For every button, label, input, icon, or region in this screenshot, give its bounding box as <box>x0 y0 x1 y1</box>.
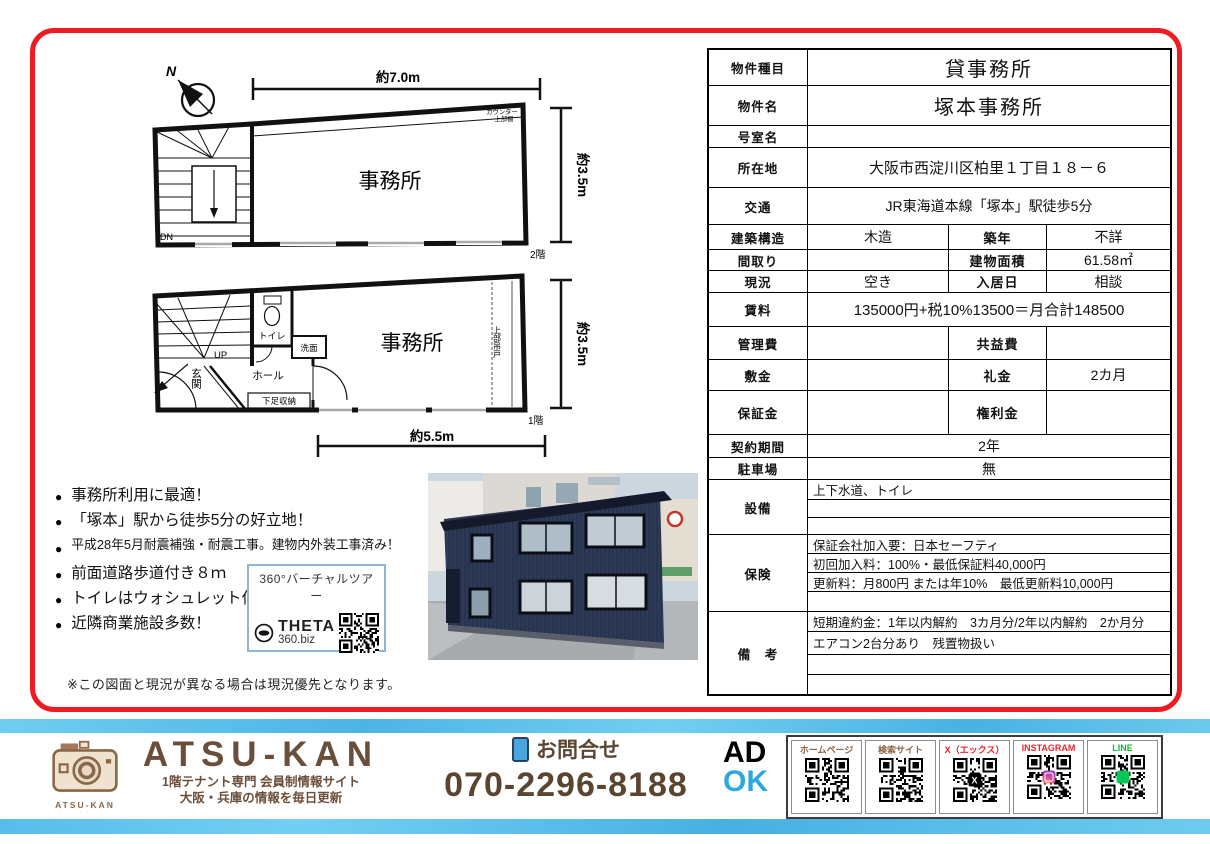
disclaimer-note: ※この図面と現況が異なる場合は現況優先となります。 <box>67 674 401 693</box>
spec-line <box>808 655 1170 675</box>
stairs-dn-label: DN <box>160 232 173 242</box>
x-logo-icon: X <box>968 774 981 787</box>
contact-block: お問合せ 070-2296-8188 <box>438 735 694 807</box>
qr-code-label: LINE <box>1112 743 1133 753</box>
highlight-text: 平成28年5月耐震補強・耐震工事。建物内外装工事済み！ <box>71 533 399 561</box>
highlight-text: 前面道路歩道付き８ｍ <box>71 561 226 586</box>
shoe-storage-label: 下足収納 <box>262 396 296 406</box>
spec-line: 短期違約金：1年以内解約 3カ月分/2年以内解約 2か月分 <box>808 612 1170 632</box>
ok-label: OK <box>723 768 768 797</box>
line-logo-icon <box>1116 771 1129 784</box>
spec-label: 物件名 <box>709 86 808 125</box>
spec-value <box>808 126 1170 147</box>
table-row: 駐車場無 <box>709 458 1170 480</box>
highlight-text: 「塚本」駅から徒歩5分の好立地！ <box>71 508 312 533</box>
theta-brand-label: THETA <box>278 619 335 635</box>
qr-code-label: 検索サイト <box>878 743 923 756</box>
spec-label: 建物面積 <box>948 250 1047 270</box>
highlight-text: 事務所利用に最適！ <box>71 483 211 508</box>
table-row: 建築構造木造築年不詳 <box>709 225 1170 250</box>
qr-code-item: INSTAGRAM <box>1013 740 1084 814</box>
camera-icon <box>50 740 120 794</box>
spec-label: 権利金 <box>948 391 1047 434</box>
building-photo <box>428 473 698 660</box>
spec-value <box>1047 327 1170 359</box>
table-row: 保険保証会社加入要：日本セーフティ初回加入料：100%・最低保証料40,000円… <box>709 535 1170 612</box>
counter-label-1: カウンター <box>486 107 517 116</box>
spec-table: 物件種目貸事務所物件名塚本事務所号室名所在地大阪市西淀川区柏里１丁目１８－６交通… <box>707 48 1172 696</box>
spec-label: 所在地 <box>709 148 808 187</box>
brand-subtitle-1: 1階テナント専門 会員制情報サイト <box>136 774 386 790</box>
spec-multiline: 上下水道、トイレ <box>808 480 1170 534</box>
spec-value: 貸事務所 <box>808 50 1170 85</box>
room-label-1f: 事務所 <box>381 332 444 355</box>
spec-line: 更新料：月800円 または年10% 最低更新料10,000円 <box>808 573 1170 592</box>
spec-value: 木造 <box>808 225 948 249</box>
spec-label: 設備 <box>709 480 808 534</box>
floor-label-2f: 2階 <box>530 249 546 261</box>
spec-label: 契約期間 <box>709 435 808 457</box>
spec-label: 駐車場 <box>709 458 808 479</box>
table-row: 所在地大阪市西淀川区柏里１丁目１８－６ <box>709 148 1170 188</box>
spec-line: 上下水道、トイレ <box>808 480 1170 500</box>
spec-label: 交通 <box>709 188 808 224</box>
room-label-2f: 事務所 <box>359 170 422 193</box>
qr-code-label: ホームページ <box>800 743 854 756</box>
logo-tagline-dots: · · · · · · · · <box>46 810 124 815</box>
spec-value: JR東海道本線「塚本」駅徒歩5分 <box>808 188 1170 224</box>
table-row: 賃料135000円+税10%13500＝月合計148500 <box>709 293 1170 327</box>
footer-wave-bottom <box>0 819 1210 834</box>
phone-icon <box>512 737 529 762</box>
table-row: 管理費共益費 <box>709 327 1170 360</box>
dim-top-2f: 約7.0m <box>376 69 420 85</box>
spec-line <box>808 675 1170 694</box>
table-row: 交通JR東海道本線「塚本」駅徒歩5分 <box>709 188 1170 225</box>
spec-line <box>808 518 1170 534</box>
brand-title: ATSU-KAN <box>136 737 386 774</box>
hall-label: ホール <box>252 370 284 382</box>
spec-multiline: 保証会社加入要：日本セーフティ初回加入料：100%・最低保証料40,000円更新… <box>808 535 1170 611</box>
spec-label: 保険 <box>709 535 808 611</box>
atsukan-logo: ATSU-KAN · · · · · · · · <box>46 740 124 815</box>
highlight-item: ●「塚本」駅から徒歩5分の好立地！ <box>55 508 455 533</box>
bullet-icon: ● <box>55 566 62 586</box>
spec-value: 不詳 <box>1047 225 1170 249</box>
spec-label: 礼金 <box>948 360 1047 390</box>
vr-tour-qr-code <box>339 607 379 659</box>
spec-value <box>1047 391 1170 434</box>
spec-value: 61.58㎡ <box>1047 250 1170 270</box>
vr-tour-box: 360°バーチャルツアー THETA 360.biz <box>247 564 386 652</box>
spec-label: 備 考 <box>709 612 808 694</box>
floor-label-1f: 1階 <box>528 415 544 427</box>
table-row: 物件種目貸事務所 <box>709 50 1170 86</box>
table-row: 号室名 <box>709 126 1170 148</box>
qr-code-label: X（エックス） <box>945 743 1005 756</box>
bullet-icon: ● <box>55 513 62 533</box>
table-row: 敷金礼金2カ月 <box>709 360 1170 391</box>
qr-code <box>1101 755 1145 799</box>
bullet-icon: ● <box>55 488 62 508</box>
spec-label: 敷金 <box>709 360 808 390</box>
spec-value: 空き <box>808 271 948 292</box>
highlight-item: ●平成28年5月耐震補強・耐震工事。建物内外装工事済み！ <box>55 533 455 561</box>
table-row: 間取り建物面積61.58㎡ <box>709 250 1170 271</box>
spec-line <box>808 592 1170 611</box>
highlight-item: ●事務所利用に最適！ <box>55 483 455 508</box>
qr-code-label: INSTAGRAM <box>1022 743 1076 753</box>
spec-line: 初回加入料：100%・最低保証料40,000円 <box>808 554 1170 573</box>
spec-value <box>808 327 948 359</box>
qr-code-item: ホームページ <box>791 740 862 814</box>
contact-label: お問合せ <box>536 734 620 764</box>
table-row: 契約期間2年 <box>709 435 1170 458</box>
spec-value: 無 <box>808 458 1170 479</box>
brand-subtitle-2: 大阪・兵庫の情報を毎日更新 <box>136 790 386 806</box>
table-row: 保証金権利金 <box>709 391 1170 435</box>
toilet-label: トイレ <box>258 331 285 341</box>
spec-line: 保証会社加入要：日本セーフティ <box>808 535 1170 554</box>
qr-code <box>805 758 849 802</box>
bullet-icon: ● <box>55 616 62 636</box>
bullet-icon: ● <box>55 538 62 561</box>
entrance-label: 玄関 <box>190 367 202 390</box>
spec-label: 号室名 <box>709 126 808 147</box>
spec-value: 135000円+税10%13500＝月合計148500 <box>808 293 1170 326</box>
ad-ok-block: AD OK <box>723 739 768 796</box>
table-row: 現況空き入居日相談 <box>709 271 1170 293</box>
table-row: 備 考短期違約金：1年以内解約 3カ月分/2年以内解約 2か月分エアコン2台分あ… <box>709 612 1170 694</box>
spec-value <box>808 360 948 390</box>
highlight-text: トイレはウォシュレット付き <box>71 586 272 611</box>
theta-sub-label: 360.biz <box>278 635 335 647</box>
dim-right-1f: 約3.5m <box>575 322 591 366</box>
spec-label: 共益費 <box>948 327 1047 359</box>
spec-label: 保証金 <box>709 391 808 434</box>
vr-tour-title: 360°バーチャルツアー <box>254 570 379 604</box>
spec-value: 相談 <box>1047 271 1170 292</box>
spec-label: 賃料 <box>709 293 808 326</box>
spec-label: 入居日 <box>948 271 1047 292</box>
qr-code: X <box>953 758 997 802</box>
highlight-text: 近隣商業施設多数！ <box>71 611 211 636</box>
spec-value: 塚本事務所 <box>808 86 1170 125</box>
spec-multiline: 短期違約金：1年以内解約 3カ月分/2年以内解約 2か月分エアコン2台分あり 残… <box>808 612 1170 694</box>
spec-label: 管理費 <box>709 327 808 359</box>
dim-bottom-1f: 約5.5m <box>410 428 454 444</box>
table-row: 物件名塚本事務所 <box>709 86 1170 126</box>
footer-wave-top <box>0 719 1210 733</box>
property-sheet: N 約7.0m 約3.5m カウンター 上部棚 DN <box>30 28 1182 712</box>
spec-value: 大阪市西淀川区柏里１丁目１８－６ <box>808 148 1170 187</box>
qr-code-item: LINE <box>1087 740 1158 814</box>
footer-band: ATSU-KAN · · · · · · · · ATSU-KAN 1階テナント… <box>0 733 1210 819</box>
hanging-door-label: 上部吊戸 <box>493 326 502 359</box>
compass-icon: N <box>166 63 214 116</box>
instagram-logo-icon <box>1042 771 1055 784</box>
qr-code-item: 検索サイト <box>865 740 936 814</box>
spec-value: 2年 <box>808 435 1170 457</box>
qr-code-item: X（エックス）X <box>939 740 1010 814</box>
qr-code <box>879 758 923 802</box>
stairs-up-label: UP <box>214 350 227 361</box>
spec-label: 築年 <box>948 225 1047 249</box>
counter-label-2: 上部棚 <box>495 114 514 123</box>
spec-label: 間取り <box>709 250 808 270</box>
floor-plan-1f: 約3.5m 約5.5m UP トイレ 洗面 <box>140 266 600 472</box>
spec-label: 現況 <box>709 271 808 292</box>
table-row: 設備上下水道、トイレ <box>709 480 1170 535</box>
compass-n-label: N <box>166 63 177 79</box>
washbasin-label: 洗面 <box>300 343 318 353</box>
spec-value <box>808 250 948 270</box>
spec-label: 建築構造 <box>709 225 808 249</box>
spec-value: 2カ月 <box>1047 360 1170 390</box>
bullet-icon: ● <box>55 591 62 611</box>
dim-right-2f: 約3.5m <box>575 153 591 197</box>
qr-code-group: ホームページ検索サイトX（エックス）XINSTAGRAMLINE <box>786 735 1163 819</box>
floor-plan-2f: N 約7.0m 約3.5m カウンター 上部棚 DN <box>140 58 595 264</box>
qr-code <box>1027 755 1071 799</box>
spec-label: 物件種目 <box>709 50 808 85</box>
brand-block: ATSU-KAN 1階テナント専門 会員制情報サイト 大阪・兵庫の情報を毎日更新 <box>136 737 386 806</box>
phone-number: 070-2296-8188 <box>438 763 694 807</box>
ad-label: AD <box>723 739 768 768</box>
spec-value <box>808 391 948 434</box>
spec-line: エアコン2台分あり 残置物扱い <box>808 632 1170 655</box>
spec-line <box>808 500 1170 518</box>
theta-logo-icon <box>254 620 274 646</box>
